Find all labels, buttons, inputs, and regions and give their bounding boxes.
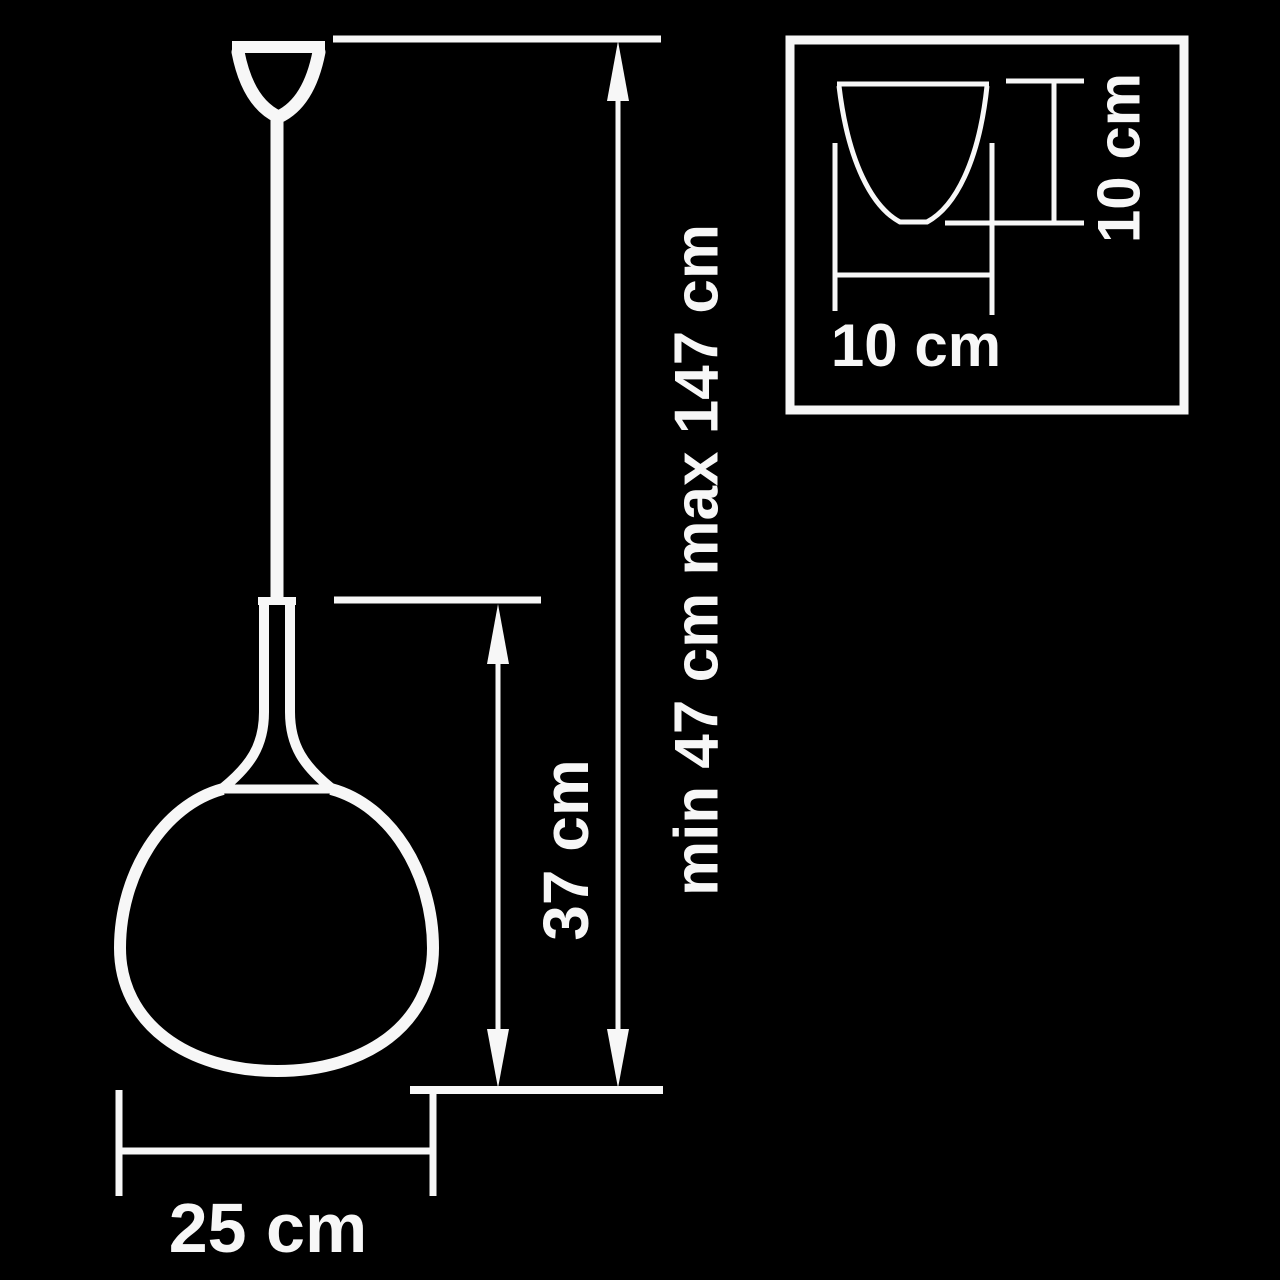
shade-diameter-label: 25 cm: [169, 1189, 367, 1267]
lamp-neck-right: [290, 601, 331, 788]
shade-height-label: 37 cm: [530, 759, 602, 940]
arrow-down-icon: [607, 1029, 629, 1088]
inset-canopy-cup: [839, 86, 987, 222]
dimension-shade-height: 37 cm: [334, 600, 602, 1088]
canopy-height-label: 10 cm: [1086, 73, 1153, 243]
lamp-neck-left: [223, 601, 264, 788]
arrow-up-icon: [487, 604, 509, 664]
diagram-svg: min 47 cm max 147 cm 37 cm 25 cm: [0, 0, 1280, 1280]
pendant-lamp-drawing: [120, 47, 433, 1071]
lamp-globe: [120, 789, 433, 1071]
canopy-detail-inset: 10 cm 10 cm: [790, 40, 1184, 410]
canopy-width-label: 10 cm: [831, 312, 1001, 379]
dimension-shade-diameter: 25 cm: [119, 1090, 433, 1267]
arrow-up-icon: [607, 41, 629, 101]
pendant-lamp-dimension-diagram: min 47 cm max 147 cm 37 cm 25 cm: [0, 0, 1280, 1280]
arrow-down-icon: [487, 1029, 509, 1088]
suspension-height-label: min 47 cm max 147 cm: [663, 224, 732, 896]
ceiling-canopy-cup: [238, 52, 319, 117]
